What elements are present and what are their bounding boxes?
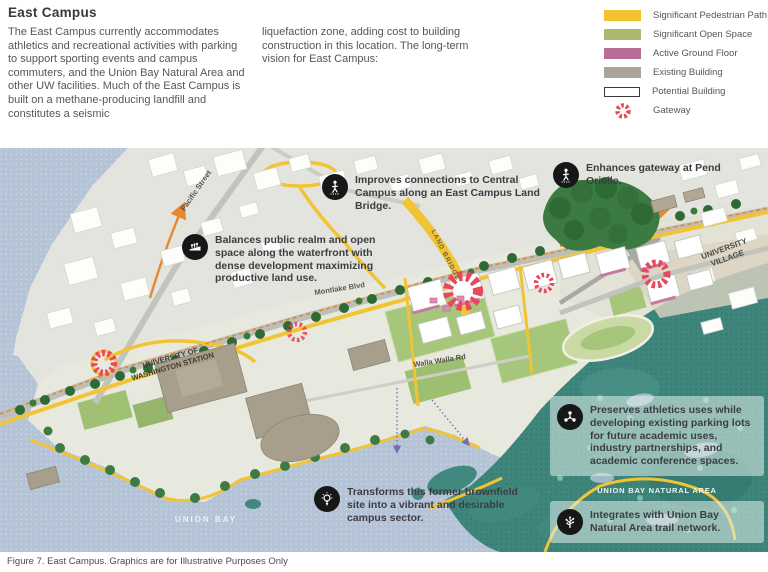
waterfront-icon [182,234,208,260]
open-space-swatch [604,29,641,40]
map-legend: Significant Pedestrian Path Significant … [604,6,764,120]
annotation-brownfield: Transforms this former brownfield site i… [314,486,534,524]
intro-paragraph-col2: liquefaction zone, adding cost to buildi… [262,26,474,67]
legend-item-active-ground-floor: Active Ground Floor [604,44,764,63]
union-bay-natural-area-label: UNION BAY NATURAL AREA [551,486,763,495]
potential-building-swatch [604,87,640,97]
existing-building-swatch [604,67,641,78]
annotation-trail-network: Integrates with Union Bay Natural Area t… [550,501,764,543]
legend-item-potential-building: Potential Building [604,82,764,101]
page-title: East Campus [8,5,97,20]
legend-item-existing-building: Existing Building [604,63,764,82]
tree-icon [557,509,583,535]
annotation-pend-orielle: Enhances gateway at Pend Orielle. [553,162,753,188]
document-page: East Campus The East Campus currently ac… [0,0,768,572]
figure-caption: Figure 7. East Campus. Graphics are for … [7,556,288,567]
network-icon [557,404,583,430]
union-bay-label: UNION BAY [175,515,237,524]
lightbulb-icon [314,486,340,512]
pedestrian-icon [322,174,348,200]
pedestrian-icon [553,162,579,188]
legend-item-open-space: Significant Open Space [604,25,764,44]
legend-item-pedestrian-path: Significant Pedestrian Path [604,6,764,25]
annotation-waterfront: Balances public realm and open space alo… [182,234,412,285]
annotation-land-bridge-connections: Improves connections to Central Campus a… [322,174,554,212]
annotation-athletics: Preserves athletics uses while developin… [550,396,764,476]
intro-paragraph-col1: The East Campus currently accommodates a… [8,26,248,121]
gateway-icon [604,105,641,116]
east-campus-map: Pacific Street Montlake Blvd LAND BRIDGE… [0,148,768,552]
pedestrian-path-swatch [604,10,641,21]
active-ground-floor-swatch [604,48,641,59]
legend-item-gateway: Gateway [604,101,764,120]
